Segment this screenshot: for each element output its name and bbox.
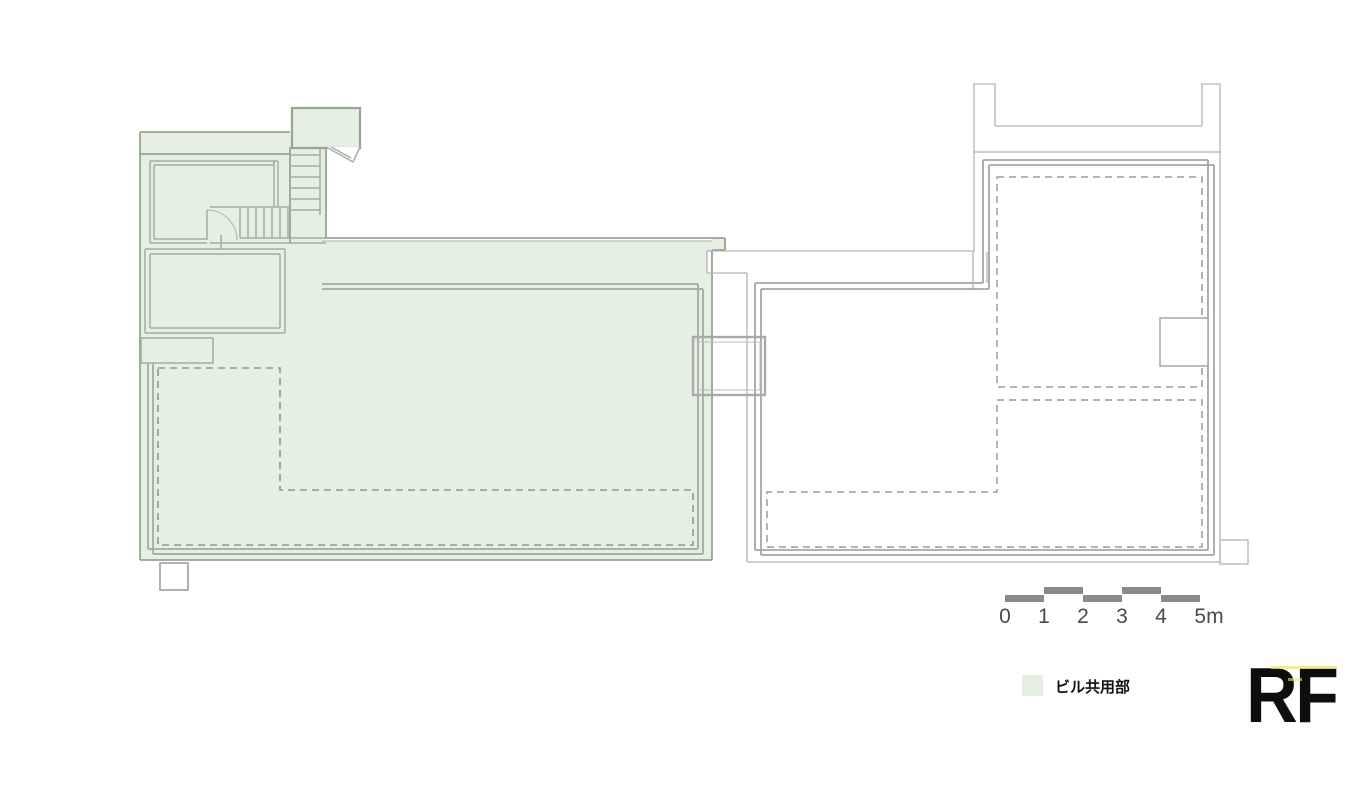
right-building-inner-border [755, 160, 1214, 555]
bottom-right-tab [1220, 540, 1248, 564]
scale-tick-2: 2 [1077, 605, 1089, 629]
terrace-corner-nub-fill [712, 238, 725, 250]
scale-bar-seg-4 [1122, 587, 1161, 594]
scale-tick-4: 4 [1155, 605, 1167, 629]
scale-bar-seg-2 [1044, 587, 1083, 594]
yellow-artifact-line [1271, 666, 1337, 669]
room-block-fill [140, 154, 325, 240]
right-wall-box [1160, 318, 1208, 366]
legend-common-area-label: ビル共用部 [1055, 676, 1130, 697]
bottom-protrusion [160, 563, 188, 590]
common-area-top-band [140, 132, 292, 154]
scale-bar-seg-5 [1161, 595, 1200, 602]
legend-common-area-swatch [1022, 675, 1043, 696]
right-dashed-lower [767, 400, 1202, 547]
right-building-outer-wall [707, 84, 1220, 562]
scale-tick-1: 1 [1038, 605, 1050, 629]
scale-bar-seg-3 [1083, 595, 1122, 602]
connecting-corridor [707, 251, 974, 273]
floor-plan-page: 0 1 2 3 4 5m ビル共用部 RF [0, 0, 1372, 810]
scale-bar [1005, 587, 1200, 602]
scale-tick-3: 3 [1116, 605, 1128, 629]
scale-tick-5m: 5m [1194, 605, 1223, 629]
common-area-fill [140, 108, 725, 560]
scale-tick-0: 0 [999, 605, 1011, 629]
stair-tower-fill [292, 108, 360, 148]
scale-bar-seg-1 [1005, 595, 1044, 602]
yellow-artifact-dash [1288, 678, 1302, 681]
floor-plan-drawing [0, 0, 1372, 810]
